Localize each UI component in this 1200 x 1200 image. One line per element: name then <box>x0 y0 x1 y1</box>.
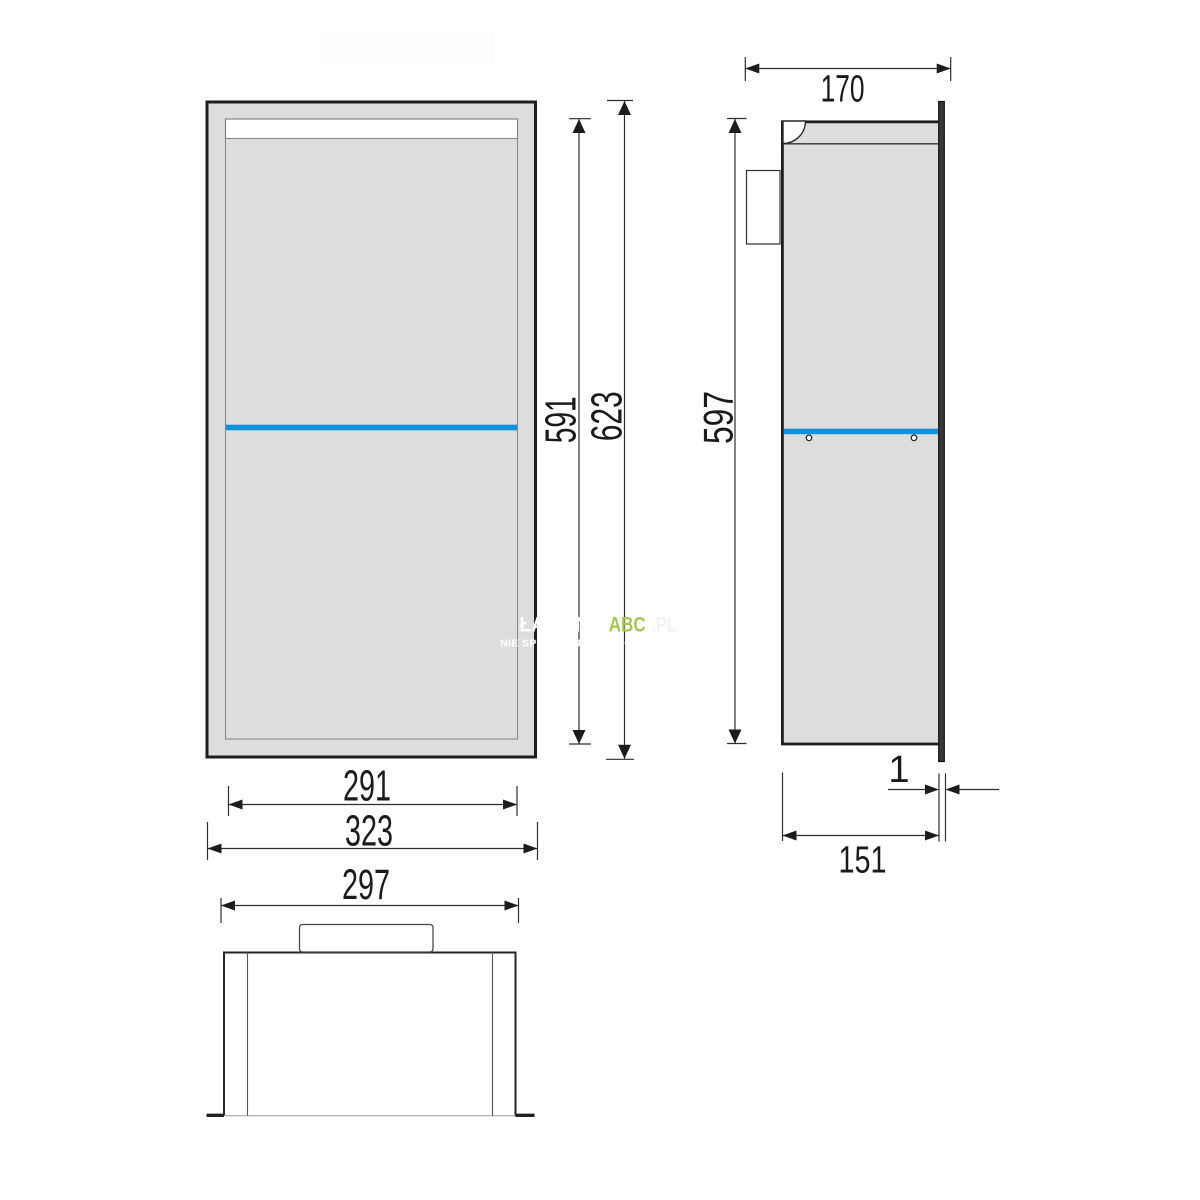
svg-text:1: 1 <box>888 749 909 791</box>
svg-text:597: 597 <box>695 391 742 444</box>
svg-text:291: 291 <box>343 762 391 811</box>
svg-text:323: 323 <box>345 807 393 856</box>
svg-text:NIE SPRZEDAJEMY DROGO: NIE SPRZEDAJEMY DROGO <box>500 638 650 650</box>
svg-text:591: 591 <box>536 396 585 443</box>
svg-text:151: 151 <box>839 840 887 882</box>
svg-text:170: 170 <box>821 69 865 111</box>
svg-text:297: 297 <box>342 861 390 909</box>
svg-text:623: 623 <box>583 391 632 441</box>
svg-text:ŁAZIENKI: ŁAZIENKI <box>520 614 609 637</box>
svg-text:.PL: .PL <box>651 614 677 637</box>
svg-text:ABC: ABC <box>609 614 646 637</box>
